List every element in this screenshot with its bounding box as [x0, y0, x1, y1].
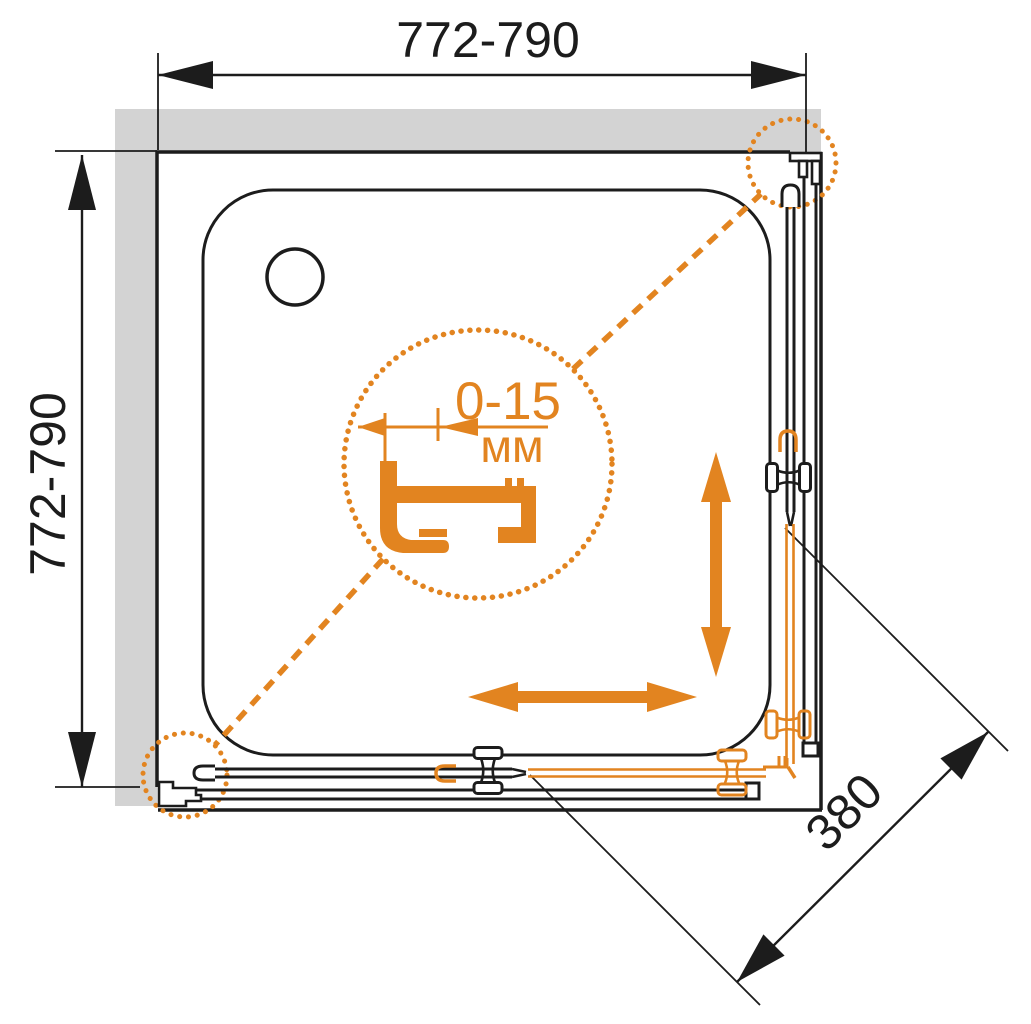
dimension-line	[737, 732, 988, 982]
extension-line	[785, 528, 1008, 751]
sliding-door-bottom-taper	[512, 769, 526, 777]
profile-cross-section	[380, 461, 536, 553]
dimension-left-label: 772-790	[20, 392, 76, 576]
shower-tray	[203, 190, 770, 755]
detail-unit-label: мм	[480, 420, 543, 472]
fixed-panel-right	[804, 168, 816, 750]
arrow-head-left	[468, 682, 518, 712]
wall-left	[115, 109, 157, 806]
roller-flange	[474, 748, 502, 759]
sliding-door-right-taper	[787, 512, 794, 526]
shower-enclosure-plan: 772-790 772-790 380 0-15 мм	[0, 0, 1031, 1024]
roller-bottom-open-icon	[718, 750, 746, 795]
profile-stem-foot	[380, 461, 449, 553]
arrowhead-down	[68, 732, 96, 787]
corner-bracket-tick	[788, 767, 795, 778]
sliding-door-right-glass	[787, 205, 794, 512]
profile-tooth	[517, 478, 524, 487]
arrow-shaft	[514, 691, 651, 703]
arrow-head-down	[701, 627, 731, 677]
profile-tooth	[505, 478, 512, 487]
profile-arm-block	[397, 486, 536, 543]
arrowhead-left	[158, 61, 213, 89]
callout-line-top-right	[573, 194, 761, 369]
door-right	[766, 153, 821, 764]
corner-connector	[763, 756, 795, 778]
profile-leg	[799, 161, 807, 177]
slide-arrow-vertical	[701, 452, 731, 677]
arrow-shaft	[710, 498, 722, 632]
sliding-door-bottom-open-position	[528, 770, 766, 777]
technical-drawing-page: 772-790 772-790 380 0-15 мм	[0, 0, 1031, 1024]
roller-waist	[777, 718, 799, 732]
arrow-head-right	[647, 682, 697, 712]
slide-arrow-horizontal	[468, 682, 697, 712]
detail-inset: 0-15 мм	[344, 330, 612, 598]
callout-line-bottom-left	[215, 559, 383, 745]
dimension-top-label: 772-790	[396, 12, 580, 68]
arrowhead-right	[751, 61, 806, 89]
fixed-panel-bottom-end-cap	[746, 783, 759, 799]
corner-bracket	[763, 758, 787, 767]
wall-profile-bottom-left	[159, 782, 201, 806]
dimension-entry-label: 380	[795, 763, 894, 862]
arrowhead-up	[68, 155, 96, 210]
profile-clip	[419, 529, 447, 537]
wall-top	[115, 109, 821, 152]
roller-flange	[767, 464, 778, 492]
tray-outline	[203, 190, 770, 755]
drain-circle	[267, 249, 323, 305]
sliding-door-bottom-glass	[213, 769, 512, 777]
wall-inner-edges	[157, 152, 790, 787]
sliding-door-bottom-cap	[194, 766, 215, 780]
roller-flange	[800, 464, 811, 492]
roller-flange	[474, 783, 502, 794]
sliding-door-right-cap	[782, 185, 799, 207]
fixed-panel-right-end-cap	[803, 743, 818, 756]
roller-flange	[766, 711, 777, 738]
detail-arrow-1	[358, 418, 385, 436]
profile-leg	[812, 161, 820, 184]
arrow-head-up	[701, 452, 731, 502]
roller-waist	[725, 761, 739, 783]
